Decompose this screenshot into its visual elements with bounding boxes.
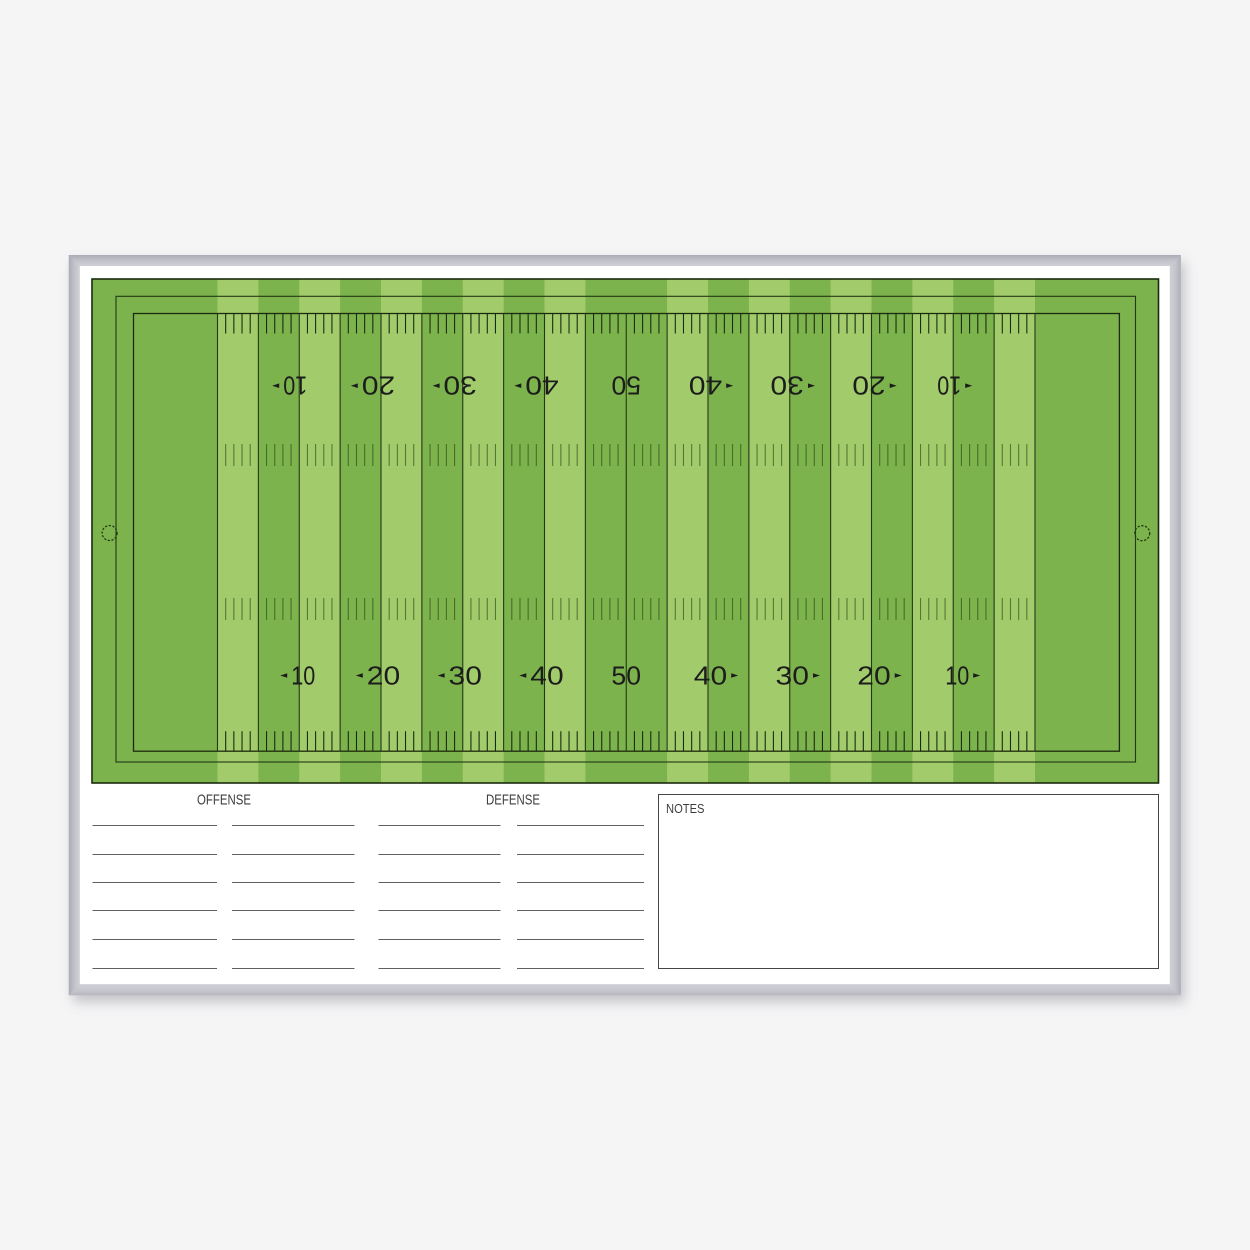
svg-text:40: 40 bbox=[525, 371, 558, 399]
svg-text:OFFENSE: OFFENSE bbox=[197, 793, 251, 809]
svg-text:20: 20 bbox=[362, 371, 395, 399]
svg-text:10: 10 bbox=[283, 371, 307, 399]
svg-text:40: 40 bbox=[694, 663, 727, 691]
svg-text:50: 50 bbox=[611, 371, 641, 399]
svg-text:20: 20 bbox=[367, 663, 400, 691]
svg-text:20: 20 bbox=[857, 663, 890, 691]
svg-text:20: 20 bbox=[852, 371, 885, 399]
svg-text:DEFENSE: DEFENSE bbox=[486, 793, 540, 809]
svg-text:NOTES: NOTES bbox=[666, 801, 705, 816]
svg-text:30: 30 bbox=[771, 371, 804, 399]
svg-text:30: 30 bbox=[444, 371, 477, 399]
svg-text:30: 30 bbox=[776, 663, 809, 691]
svg-text:10: 10 bbox=[937, 371, 961, 399]
svg-text:40: 40 bbox=[689, 371, 722, 399]
svg-text:10: 10 bbox=[291, 663, 315, 691]
svg-text:10: 10 bbox=[945, 663, 969, 691]
svg-text:50: 50 bbox=[611, 663, 641, 691]
svg-text:30: 30 bbox=[449, 663, 482, 691]
svg-text:40: 40 bbox=[530, 663, 563, 691]
